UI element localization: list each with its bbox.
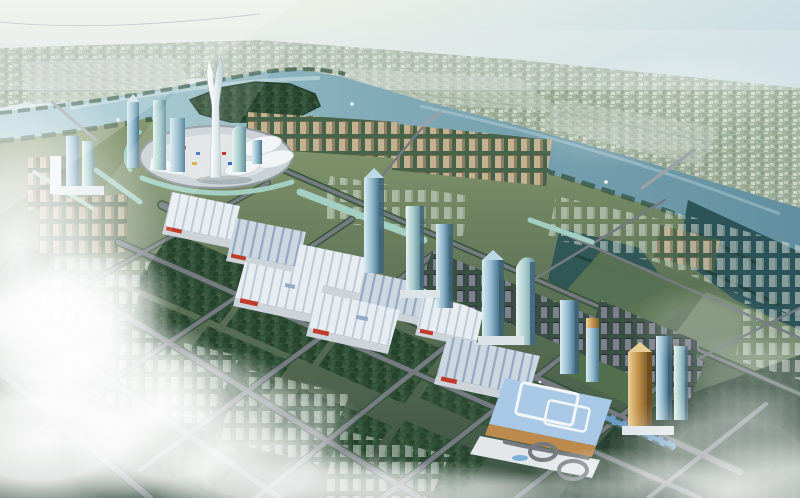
cloud xyxy=(220,380,360,460)
boat xyxy=(604,180,608,184)
aerial-city-rendering xyxy=(0,0,800,498)
tower-podium xyxy=(400,290,440,298)
glass-tower xyxy=(364,168,384,273)
cloud-right xyxy=(630,285,770,365)
fountain-pool xyxy=(512,455,528,461)
glass-tower xyxy=(406,206,424,294)
glass-tower-curved-top xyxy=(516,257,535,345)
curved-glass-tower xyxy=(232,125,246,172)
glass-tower-small xyxy=(252,140,262,164)
scene-canvas xyxy=(0,0,800,498)
glass-tower xyxy=(560,300,579,374)
tower-podium xyxy=(478,336,524,345)
boat xyxy=(350,102,353,105)
glass-tower-gold-top xyxy=(586,318,599,382)
glass-tower xyxy=(482,250,504,340)
car xyxy=(539,381,542,384)
haze-wisp xyxy=(520,110,720,170)
